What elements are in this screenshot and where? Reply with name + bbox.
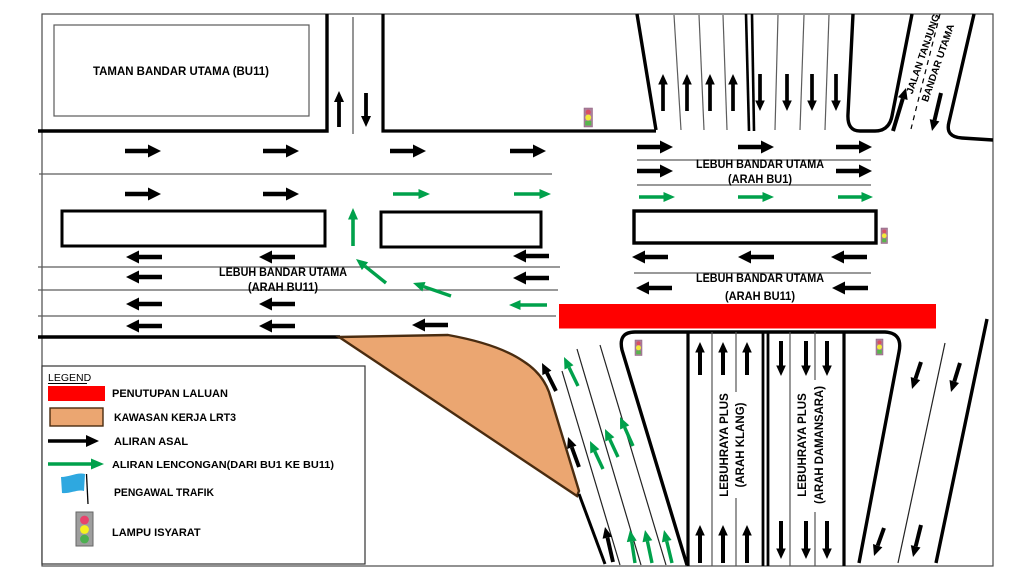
svg-text:ALIRAN ASAL: ALIRAN ASAL	[114, 436, 188, 448]
svg-text:(ARAH KLANG): (ARAH KLANG)	[735, 402, 747, 487]
svg-text:(ARAH DAMANSARA): (ARAH DAMANSARA)	[814, 386, 826, 504]
svg-text:PENUTUPAN LALUAN: PENUTUPAN LALUAN	[112, 388, 228, 400]
svg-text:LEBUH BANDAR UTAMA: LEBUH BANDAR UTAMA	[696, 273, 824, 285]
svg-text:LEBUH BANDAR UTAMA: LEBUH BANDAR UTAMA	[696, 159, 824, 171]
svg-text:LEBUHRAYA PLUS: LEBUHRAYA PLUS	[797, 393, 809, 497]
svg-text:PENGAWAL TRAFIK: PENGAWAL TRAFIK	[114, 487, 214, 499]
svg-text:(ARAH BU11): (ARAH BU11)	[725, 291, 795, 303]
svg-text:(ARAH BU11): (ARAH BU11)	[248, 282, 318, 294]
svg-text:ALIRAN LENCONGAN(DARI BU1 KE B: ALIRAN LENCONGAN(DARI BU1 KE BU11)	[112, 460, 334, 471]
svg-text:LAMPU ISYARAT: LAMPU ISYARAT	[112, 527, 201, 539]
svg-text:LEBUHRAYA PLUS: LEBUHRAYA PLUS	[719, 393, 731, 497]
svg-text:LEGEND: LEGEND	[48, 372, 92, 384]
svg-text:KAWASAN KERJA LRT3: KAWASAN KERJA LRT3	[114, 412, 236, 424]
svg-text:(ARAH BU1): (ARAH BU1)	[728, 174, 792, 186]
svg-text:LEBUH BANDAR UTAMA: LEBUH BANDAR UTAMA	[219, 267, 347, 279]
svg-text:TAMAN BANDAR UTAMA (BU11): TAMAN BANDAR UTAMA (BU11)	[93, 64, 269, 78]
